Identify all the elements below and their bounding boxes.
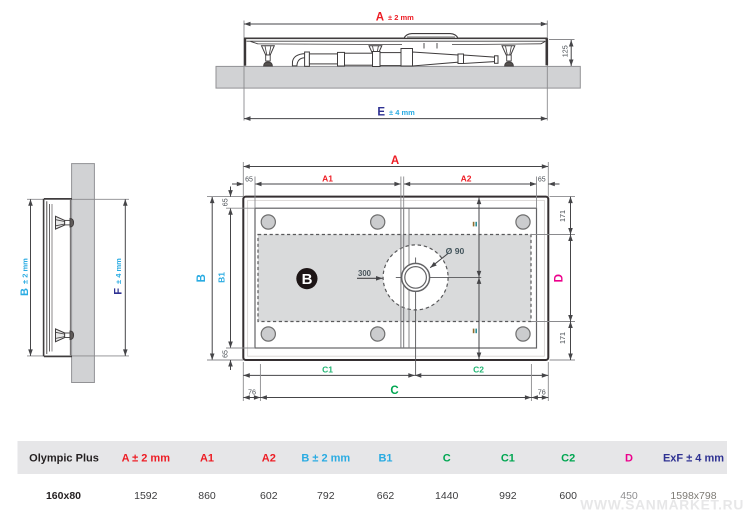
svg-text:C2: C2 bbox=[473, 364, 484, 374]
svg-text:A1: A1 bbox=[200, 453, 214, 465]
svg-text:160x80: 160x80 bbox=[46, 490, 81, 502]
svg-text:B1: B1 bbox=[378, 453, 392, 465]
svg-text:B ± 2 mm: B ± 2 mm bbox=[301, 453, 350, 465]
svg-text:B: B bbox=[19, 288, 31, 296]
svg-text:B: B bbox=[302, 271, 313, 288]
svg-text:WWW.SANMARKET.RU: WWW.SANMARKET.RU bbox=[580, 498, 744, 513]
svg-text:C2: C2 bbox=[561, 453, 575, 465]
svg-text:860: 860 bbox=[198, 490, 216, 502]
svg-text:C1: C1 bbox=[322, 364, 333, 374]
svg-text:± 4 mm: ± 4 mm bbox=[114, 258, 123, 284]
svg-text:76: 76 bbox=[538, 387, 546, 396]
svg-text:A1: A1 bbox=[322, 173, 333, 183]
svg-text:171: 171 bbox=[558, 332, 567, 344]
svg-text:1440: 1440 bbox=[435, 490, 459, 502]
svg-text:B: B bbox=[196, 274, 208, 282]
svg-text:± 2 mm: ± 2 mm bbox=[21, 258, 30, 284]
svg-text:992: 992 bbox=[499, 490, 517, 502]
svg-text:E: E bbox=[377, 107, 385, 119]
svg-text:C1: C1 bbox=[501, 453, 515, 465]
svg-text:A ± 2 mm: A ± 2 mm bbox=[122, 453, 171, 465]
svg-text:1592: 1592 bbox=[134, 490, 158, 502]
svg-text:792: 792 bbox=[317, 490, 335, 502]
svg-text:D: D bbox=[554, 274, 566, 282]
svg-text:A: A bbox=[376, 12, 384, 24]
svg-text:65: 65 bbox=[222, 198, 229, 206]
svg-text:B1: B1 bbox=[216, 272, 226, 283]
svg-text:300: 300 bbox=[358, 269, 372, 278]
svg-text:125: 125 bbox=[561, 45, 570, 57]
svg-text:Ø 90: Ø 90 bbox=[446, 246, 465, 256]
svg-text:A2: A2 bbox=[262, 453, 276, 465]
svg-text:± 4 mm: ± 4 mm bbox=[389, 108, 415, 117]
svg-text:F: F bbox=[113, 288, 125, 295]
svg-text:C: C bbox=[443, 453, 451, 465]
svg-text:A2: A2 bbox=[461, 173, 472, 183]
svg-text:D: D bbox=[625, 453, 633, 465]
svg-text:A: A bbox=[391, 155, 399, 167]
svg-text:602: 602 bbox=[260, 490, 278, 502]
svg-text:C: C bbox=[390, 385, 398, 397]
svg-text:65: 65 bbox=[538, 176, 546, 183]
svg-text:662: 662 bbox=[377, 490, 395, 502]
svg-text:65: 65 bbox=[245, 176, 253, 183]
svg-text:171: 171 bbox=[558, 210, 567, 222]
svg-text:65: 65 bbox=[222, 350, 229, 358]
svg-text:ExF ± 4 mm: ExF ± 4 mm bbox=[663, 453, 724, 465]
svg-text:Olympic Plus: Olympic Plus bbox=[29, 453, 99, 465]
svg-text:± 2 mm: ± 2 mm bbox=[388, 13, 414, 22]
svg-text:600: 600 bbox=[559, 490, 577, 502]
svg-text:76: 76 bbox=[248, 387, 256, 396]
